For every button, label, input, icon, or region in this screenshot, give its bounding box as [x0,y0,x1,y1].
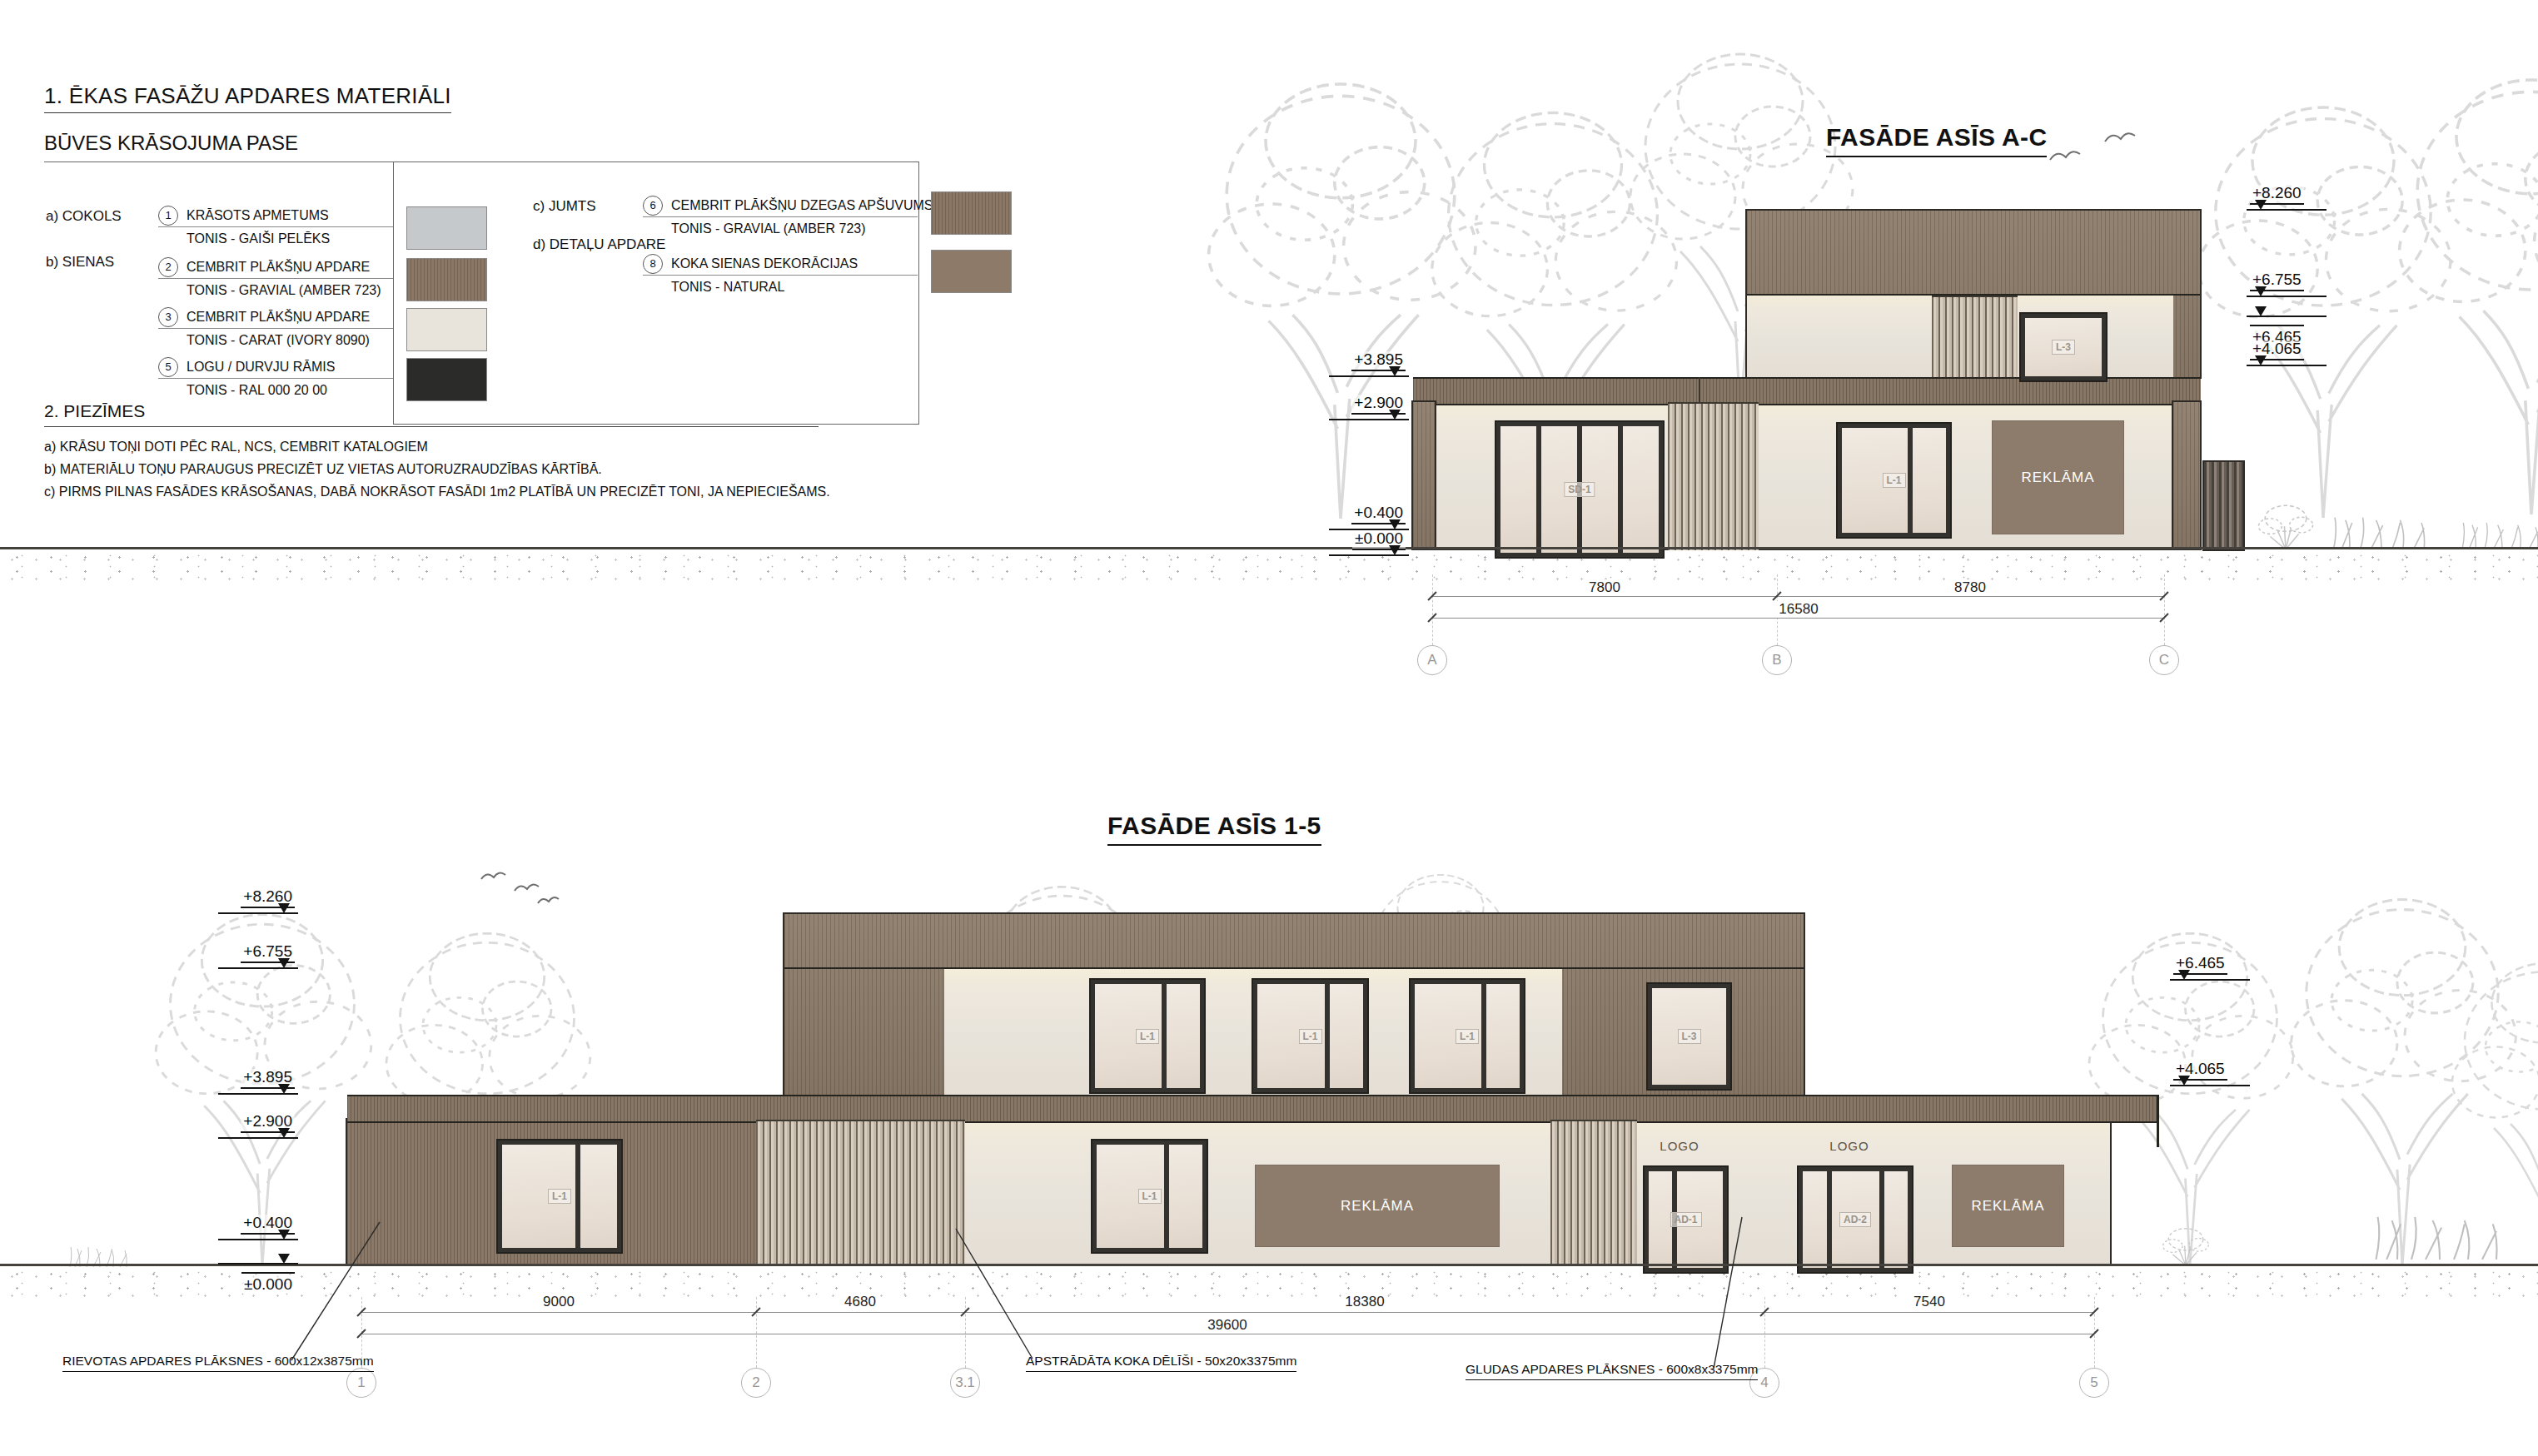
window-l1-upper: L-1 [1409,978,1525,1094]
facade-15-floor-band [347,1095,2158,1123]
dim-total-value: 39600 [1204,1317,1250,1334]
advert-sign-1: REKLĀMA [1256,1165,1499,1246]
architectural-drawing-sheet: { "legend": { "title": "1. ĒKAS FASĀŽU A… [0,0,2538,1456]
swatch-koka-natural [931,250,1012,293]
item-number-badge: 3 [158,307,178,327]
facade-15-title: FASĀDE ASĪS 1-5 [1107,812,1321,846]
item-number-badge: 2 [158,257,178,277]
callout-treated-wood-slats: APSTRĀDĀTA KOKA DĒLĪŠI - 50x20x3375mm [1026,1354,1296,1372]
material-name: CEMBRIT PLĀKŠŅU DZEGAS APŠUVUMS [643,198,918,217]
legend-item-6: 6 CEMBRIT PLĀKŠŅU DZEGAS APŠUVUMS TONIS … [643,198,918,236]
ground-line-ac [0,547,2538,549]
window-label: L-1 [1299,1029,1322,1044]
window-label: L-3 [1678,1029,1701,1044]
category-jumts: c) JUMTS [533,198,596,215]
category-cokols: a) COKOLS [46,208,122,225]
level-value: +4.065 [2173,1061,2227,1081]
material-tone: TONIS - GRAVIAL (AMBER 723) [643,217,918,236]
material-name: KOKA SIENAS DEKORĀCIJAS [643,256,918,276]
facade-ac-title: FASĀDE ASĪS A-C [1826,123,2047,157]
legend-item-1: 1 KRĀSOTS APMETUMS TONIS - GAIŠI PELĒKS [158,208,393,246]
grid-bubble-a: A [1417,645,1447,675]
paint-passport-subtitle: BŪVES KRĀSOJUMA PASE [44,132,298,155]
grid-bubble-1: 1 [346,1368,376,1398]
level-value: +8.260 [2250,185,2304,205]
level-value: +6.465 [2173,955,2227,975]
legend-item-5: 5 LOGU / DURVJU RĀMIS TONIS - RAL 000 20… [158,360,393,398]
gravel-band-15 [0,1267,2538,1297]
material-tone: TONIS - CARAT (IVORY 8090) [158,329,393,348]
swatch-frame-dark [406,358,487,401]
level-value: +3.895 [241,1069,295,1089]
door-label: AD-1 [1670,1212,1701,1227]
gravel-band-ac [0,550,2538,580]
swatch-plaster-grey [406,206,487,250]
notes-title: 2. PIEZĪMES [44,401,145,421]
legend-divider-line [393,162,394,425]
level-value: +2.900 [241,1113,295,1133]
note-b: b) MATERIĀLU TOŅU PARAUGUS PRECIZĒT UZ V… [44,462,602,477]
window-l1-ac: L-1 [1836,422,1952,539]
window-l3-upper: L-3 [1646,982,1732,1091]
window-pane [1330,984,1363,1088]
swatch-dzega-gravial [931,191,1012,235]
level-value: +2.900 [1351,395,1406,415]
band-joint-line [1699,377,1700,402]
grid-bubble-2: 2 [741,1368,771,1398]
category-detalu-apdare: d) DETAĻU APDARE [533,236,665,253]
logo-text-1: LOGO [1660,1139,1699,1153]
grid-leader [1432,574,1433,645]
level-value: +6.755 [241,943,295,963]
door-pane [1884,1171,1908,1268]
window-label: L-1 [1456,1029,1479,1044]
window-l3: L-3 [2019,312,2108,382]
grid-bubble-b: B [1762,645,1792,675]
facade-ac-left-pier [1413,402,1435,549]
legend-top-rule [44,162,918,162]
callout-grooved-panels: RIEVOTAS APDARES PLĀKSNES - 600x12x3875m… [62,1354,374,1372]
material-tone: TONIS - NATURAL [643,276,918,295]
level-value: +0.400 [1351,504,1406,524]
upper-cornice-edge-line [784,967,1804,969]
window-pane [1486,984,1520,1088]
window-label: L-3 [2052,340,2075,355]
grid-leader [2164,574,2165,645]
material-name: CEMBRIT PLĀKŠŅU APDARE [158,310,393,329]
level-value: +8.260 [241,888,295,908]
dim-value: 9000 [540,1294,578,1310]
legend-item-8: 8 KOKA SIENAS DEKORĀCIJAS TONIS - NATURA… [643,256,918,295]
level-value: +3.895 [1351,351,1406,371]
level-value: ±0.000 [1352,530,1406,550]
window-label: L-1 [548,1189,571,1204]
level-value: +6.755 [2250,271,2304,291]
window-label: L-1 [1883,473,1906,488]
dim-line-total [1432,618,2164,619]
window-label: L-1 [1138,1189,1162,1204]
dim-value: 18380 [1341,1294,1387,1310]
facade-15-slat-section [756,1120,965,1266]
material-name: LOGU / DURVJU RĀMIS [158,360,393,379]
window-l1-upper: L-1 [1089,978,1206,1094]
notes-rule [44,426,819,427]
facade-15-entry-slat-decor [1550,1120,1637,1266]
grid-bubble-c: C [2149,645,2179,675]
door-label: SD-1 [1564,482,1595,497]
window-pane [1913,428,1946,533]
dim-value: 7800 [1585,579,1624,596]
item-number-badge: 1 [158,206,178,226]
grid-leader [965,1297,966,1368]
note-c: c) PIRMS PILNAS FASĀDES KRĀSOŠANAS, DABĀ… [44,485,830,499]
material-tone: TONIS - GRAVIAL (AMBER 723) [158,279,393,298]
door-pane [1500,426,1536,553]
window-pane [1167,984,1200,1088]
grid-leader [1764,1297,1765,1368]
materials-title: 1. ĒKAS FASĀŽU APDARES MATERIĀLI [44,83,451,113]
facade-ac-upper-slat-decor [1932,296,2018,379]
grid-bubble-3-1: 3.1 [950,1368,980,1398]
legend-bottom-frame-line [393,424,919,425]
legend-item-3: 3 CEMBRIT PLĀKŠŅU APDARE TONIS - CARAT (… [158,310,393,348]
category-sienas: b) SIENAS [46,254,114,271]
window-pane [1169,1145,1202,1248]
item-number-badge: 8 [643,254,663,274]
dim-line [1432,596,2164,597]
door-label: AD-2 [1839,1212,1871,1227]
grid-bubble-5: 5 [2079,1368,2109,1398]
callout-smooth-panels: GLUDAS APDARES PLĀKSNES - 600x8x3375mm [1466,1362,1758,1380]
facade-ac-right-pier [2173,402,2200,549]
swatch-carat-ivory [406,308,487,351]
entry-door-ad2: AD-2 [1797,1165,1913,1274]
dim-value: 4680 [841,1294,879,1310]
door-pane [1803,1171,1827,1268]
level-value: ±0.000 [241,1272,295,1292]
facade-ac-ground-slat-decor [1668,402,1759,550]
band-right-end-cap [2157,1095,2159,1147]
slat-fence-element [2202,460,2245,551]
legend-item-2: 2 CEMBRIT PLĀKŠŅU APDARE TONIS - GRAVIAL… [158,260,393,298]
door-pane [1649,1171,1672,1268]
material-name: KRĀSOTS APMETUMS [158,208,393,227]
window-l1-left-section: L-1 [496,1139,623,1254]
window-label: L-1 [1136,1029,1159,1044]
window-pane [580,1145,617,1248]
dim-total-value: 16580 [1775,601,1821,618]
level-value: +4.065 [2250,340,2304,360]
logo-text-2: LOGO [1829,1139,1869,1153]
material-tone: TONIS - RAL 000 20 00 [158,379,393,398]
level-value: +0.400 [241,1215,295,1235]
item-number-badge: 5 [158,357,178,377]
advert-sign-2: REKLĀMA [1953,1165,2063,1246]
material-tone: TONIS - GAIŠI PELĒKS [158,227,393,246]
dim-line [361,1312,2094,1313]
sliding-door-sd1: SD-1 [1495,420,1665,559]
ground-line-15 [0,1264,2538,1266]
swatch-gravial-amber [406,258,487,301]
dim-line-total [361,1334,2094,1334]
dim-value: 7540 [1910,1294,1948,1310]
entry-door-ad1: AD-1 [1643,1165,1729,1274]
grid-leader [756,1297,757,1368]
note-a: a) KRĀSU TOŅI DOTI PĒC RAL, NCS, CEMBRIT… [44,440,428,455]
door-pane [1623,426,1659,553]
advert-sign-ac: REKLĀMA [1993,421,2123,534]
window-l1-ground: L-1 [1091,1139,1208,1254]
window-l1-upper: L-1 [1252,978,1369,1094]
item-number-badge: 6 [643,196,663,216]
material-name: CEMBRIT PLĀKŠŅU APDARE [158,260,393,279]
dim-value: 8780 [1951,579,1989,596]
